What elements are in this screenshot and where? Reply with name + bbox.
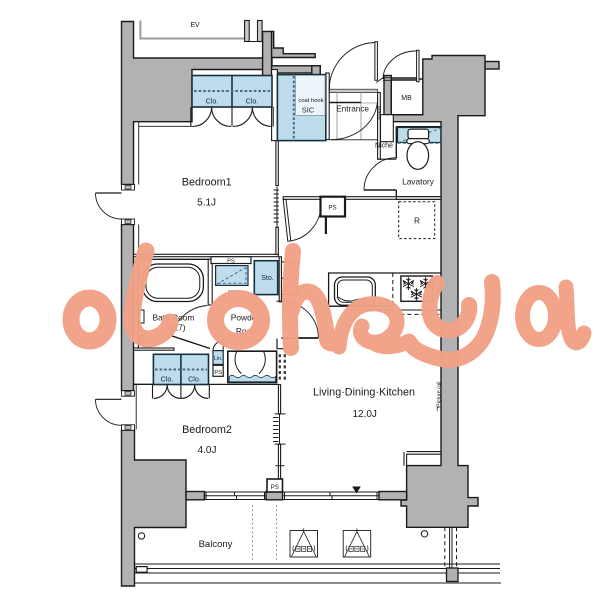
svg-text:SIC: SIC (302, 106, 315, 115)
svg-text:Entrance: Entrance (336, 104, 369, 113)
svg-text:PS: PS (227, 259, 235, 265)
svg-text:Lavatory: Lavatory (402, 177, 435, 187)
svg-text:Clo.: Clo. (206, 97, 219, 106)
svg-text:coat hook: coat hook (298, 98, 323, 104)
svg-text:Bedroom1: Bedroom1 (182, 177, 232, 189)
svg-text:Clo.: Clo. (188, 375, 201, 384)
svg-text:EV: EV (190, 22, 200, 29)
svg-text:PS: PS (214, 370, 222, 376)
svg-text:Clo.: Clo. (246, 97, 259, 106)
svg-text:12.0J: 12.0J (352, 409, 376, 420)
svg-text:R: R (414, 216, 420, 226)
svg-text:Niche: Niche (375, 143, 393, 150)
svg-text:PS: PS (271, 484, 279, 491)
svg-text:Living·Dining·Kitchen: Living·Dining·Kitchen (313, 387, 415, 399)
svg-text:Clo.: Clo. (161, 375, 174, 384)
svg-text:Balcony: Balcony (199, 539, 233, 550)
svg-text:Sto.: Sto. (261, 275, 274, 282)
svg-text:5.1J: 5.1J (197, 198, 216, 209)
svg-text:Picture rail: Picture rail (437, 382, 443, 407)
svg-text:Bedroom2: Bedroom2 (182, 424, 232, 436)
svg-text:4.0J: 4.0J (198, 445, 217, 456)
svg-text:Mirror: Mirror (375, 106, 381, 120)
svg-text:MB: MB (401, 95, 412, 102)
svg-text:Lin.: Lin. (214, 356, 222, 362)
svg-text:PS: PS (328, 205, 336, 212)
